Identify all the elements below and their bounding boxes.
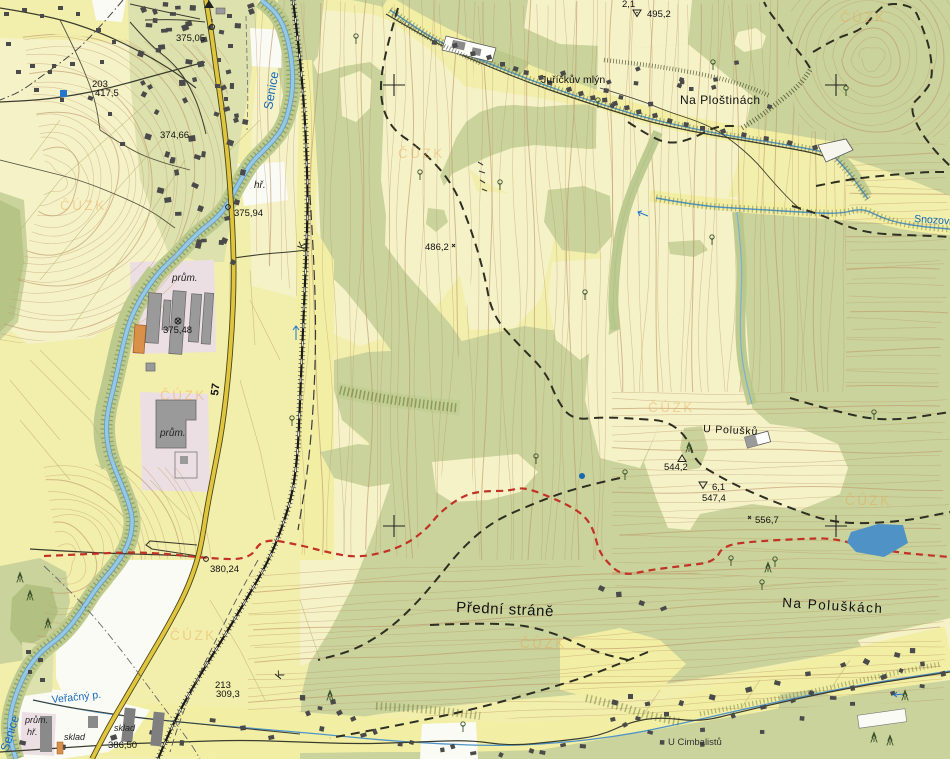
svg-text:ČÚZK: ČÚZK <box>648 400 695 415</box>
svg-text:ČÚZK: ČÚZK <box>60 198 107 213</box>
svg-text:374,66: 374,66 <box>160 130 189 141</box>
svg-text:hř.: hř. <box>254 180 266 191</box>
svg-text:375,05: 375,05 <box>176 33 205 44</box>
svg-text:U Cimbalistů: U Cimbalistů <box>668 737 722 748</box>
svg-text:sklad: sklad <box>114 723 136 733</box>
svg-text:prům.: prům. <box>171 272 198 284</box>
svg-text:prům.: prům. <box>159 427 186 439</box>
svg-text:Juříčkův mlýn: Juříčkův mlýn <box>541 74 605 86</box>
svg-text:375,94: 375,94 <box>234 208 263 219</box>
svg-text:prům.: prům. <box>24 715 48 725</box>
svg-text:ČÚZK: ČÚZK <box>398 146 445 161</box>
svg-text:ČÚZK: ČÚZK <box>845 493 892 508</box>
svg-text:386,50: 386,50 <box>108 740 137 751</box>
svg-text:ČÚZK: ČÚZK <box>520 636 567 651</box>
svg-text:375,48: 375,48 <box>163 325 192 336</box>
svg-text:ČÚZK: ČÚZK <box>160 388 207 403</box>
svg-text:309,3: 309,3 <box>216 689 240 700</box>
svg-text:417,5: 417,5 <box>95 88 119 99</box>
svg-text:6,1: 6,1 <box>712 482 725 493</box>
svg-text:hř.: hř. <box>27 727 38 737</box>
svg-text:57: 57 <box>209 383 222 397</box>
svg-text:sklad: sklad <box>64 732 86 742</box>
svg-text:486,2: 486,2 <box>425 242 449 253</box>
svg-text:Na Ploštinách: Na Ploštinách <box>680 93 761 107</box>
svg-text:556,7: 556,7 <box>755 515 779 526</box>
svg-text:495,2: 495,2 <box>647 9 671 20</box>
svg-text:547,4: 547,4 <box>702 493 726 504</box>
svg-text:ČÚZK: ČÚZK <box>170 628 217 643</box>
svg-text:2,1: 2,1 <box>622 0 635 10</box>
svg-text:ČÚZK: ČÚZK <box>840 10 887 25</box>
svg-text:544,2: 544,2 <box>664 462 688 473</box>
svg-text:380,24: 380,24 <box>210 564 239 575</box>
